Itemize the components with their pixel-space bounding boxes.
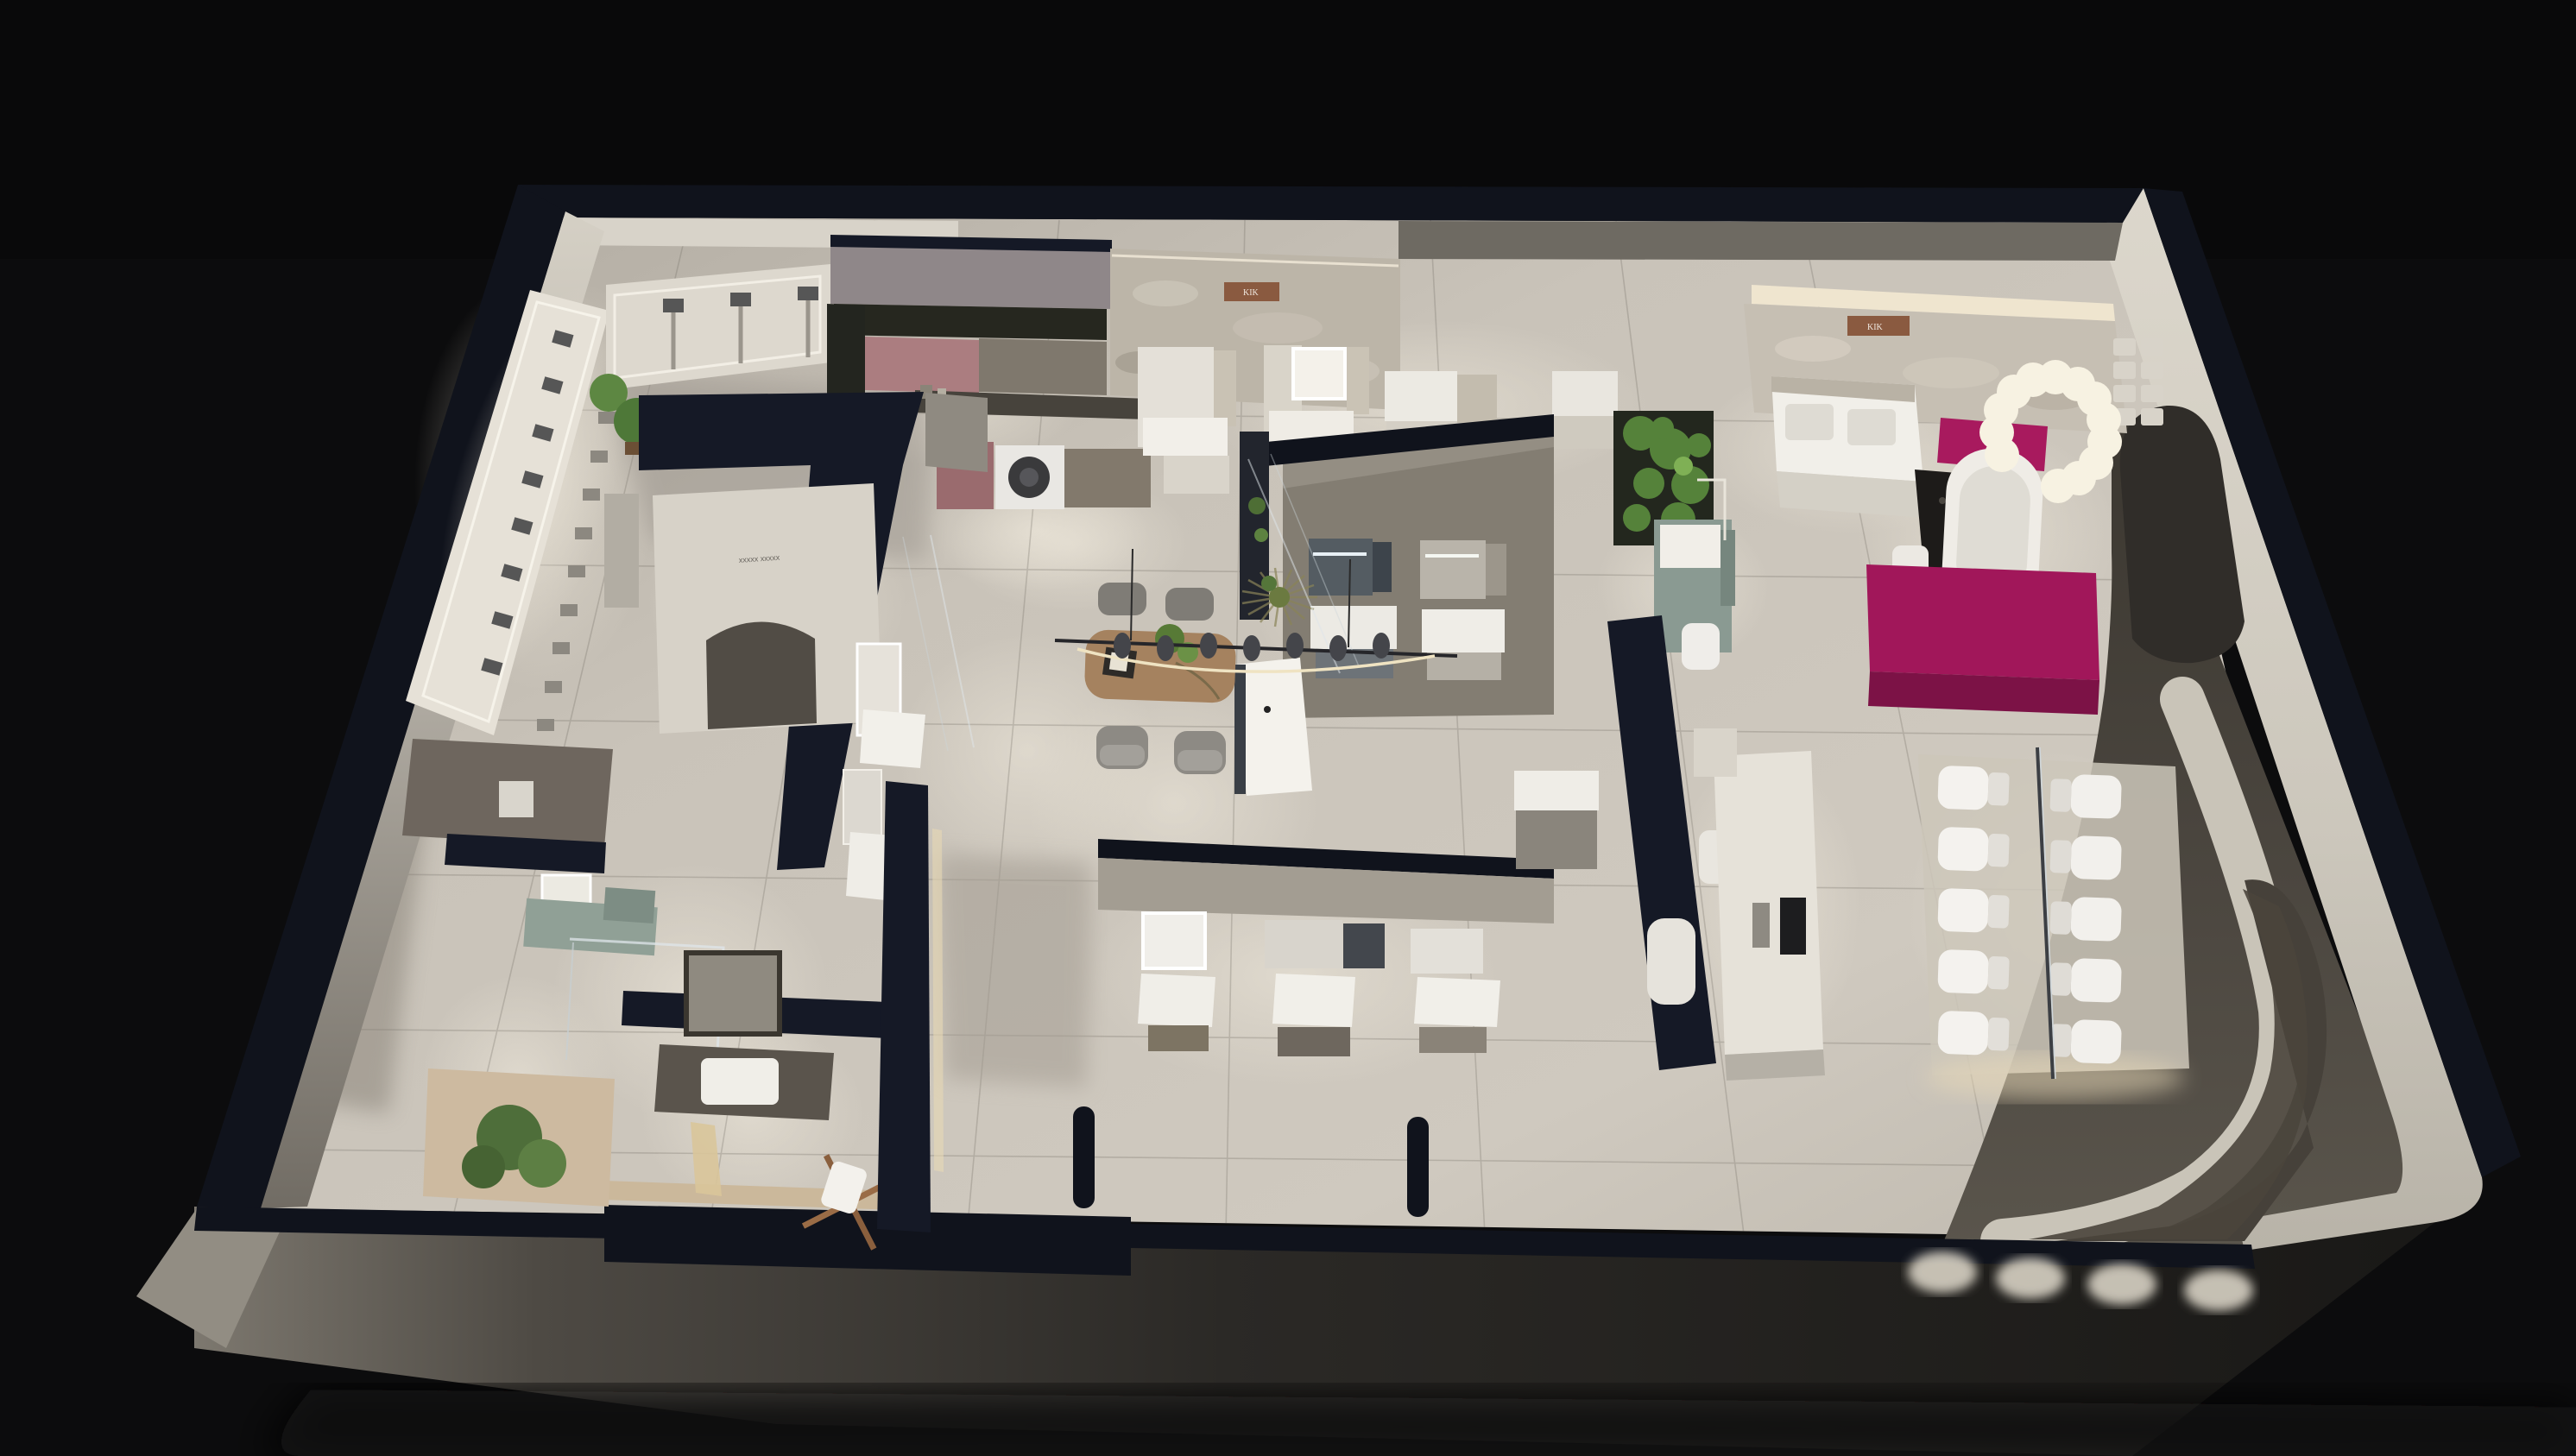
svg-text:KIK: KIK xyxy=(1867,323,1884,332)
svg-text:KIK: KIK xyxy=(1243,288,1260,298)
